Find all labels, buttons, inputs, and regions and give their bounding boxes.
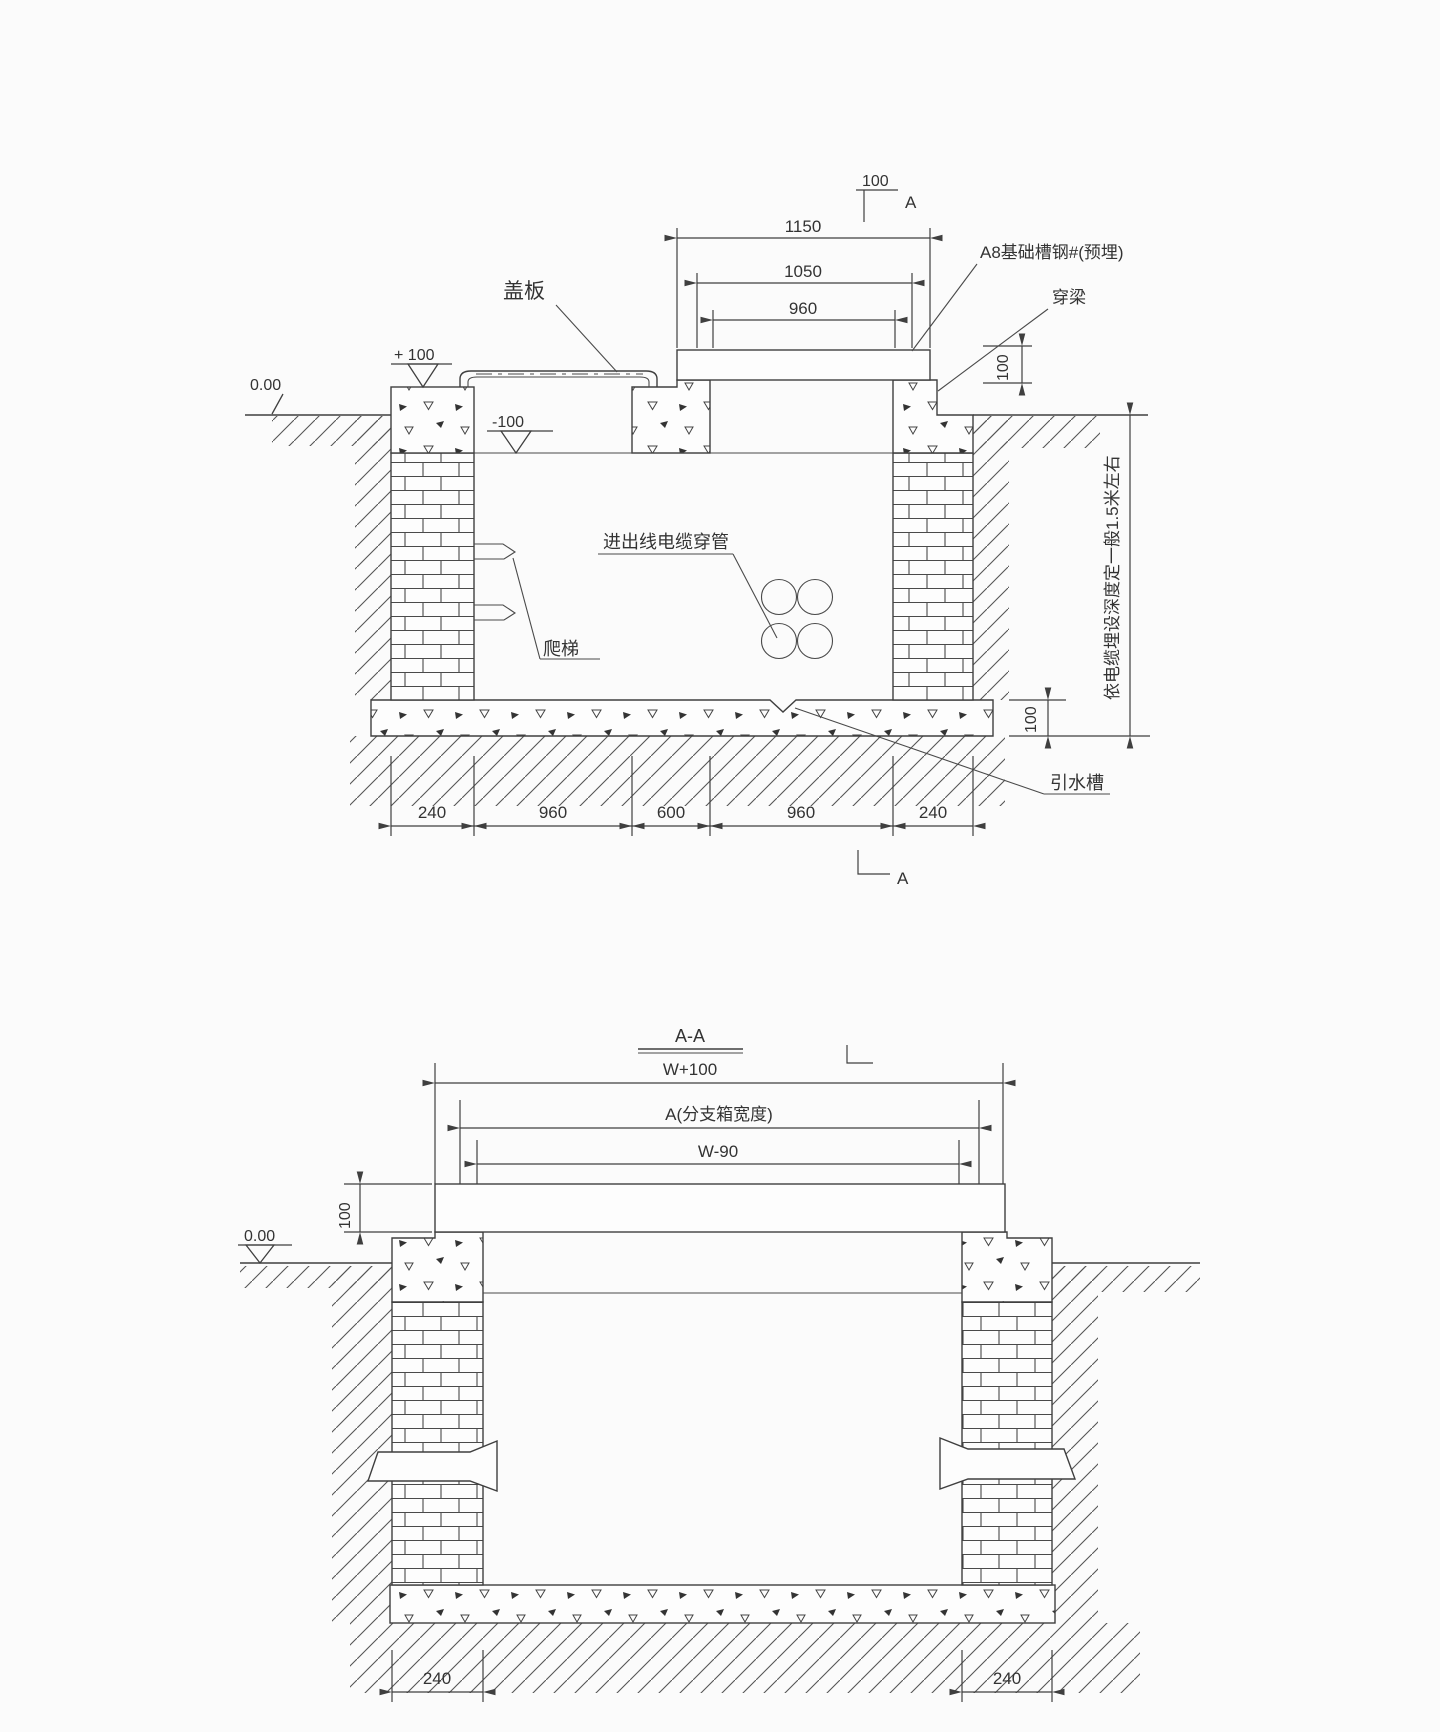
d2-cover-slab (435, 1184, 1005, 1232)
section-letter-bottom: A (897, 869, 909, 888)
label-ladder: 爬梯 (513, 558, 600, 659)
level-0-label: 0.00 (250, 377, 281, 394)
dim-100-floor: 100 (1023, 706, 1040, 733)
d2-level-0: 0.00 (238, 1228, 292, 1263)
dim-b-960l: 960 (539, 803, 567, 822)
d2-left-collar (392, 1232, 483, 1302)
d2-soil-right-band (1052, 1266, 1098, 1623)
section-mark-a-top: 100 A (856, 173, 917, 222)
label-channel-steel: A8基础槽钢#(预埋) (912, 243, 1124, 351)
pit-cross-section: 1150 1050 960 100 A 100 依 (245, 173, 1150, 888)
svg-text:A8基础槽钢#(预埋): A8基础槽钢#(预埋) (980, 243, 1124, 262)
svg-text:进出线电缆穿管: 进出线电缆穿管 (603, 532, 729, 552)
label-cover-plate: 盖板 (503, 280, 617, 372)
level-plus100: + 100 (391, 347, 452, 387)
label-through-beam: 穿梁 (938, 288, 1086, 391)
dim-b-240l: 240 (418, 803, 446, 822)
svg-text:爬梯: 爬梯 (543, 639, 579, 659)
d2-dim-240l: 240 (423, 1669, 451, 1688)
d2-level-0-label: 0.00 (244, 1228, 275, 1245)
level-0: 0.00 (250, 377, 283, 414)
dim-b-600: 600 (657, 803, 685, 822)
dim-960: 960 (789, 299, 817, 318)
d2-dim-wminus: W-90 (698, 1142, 738, 1161)
drawing-canvas: 1150 1050 960 100 A 100 依 (0, 0, 1440, 1732)
soil-hatch-right-band (973, 416, 1009, 700)
section-mark-a-bottom: A (858, 850, 909, 888)
section-letter-top: A (905, 193, 917, 212)
right-concrete-support (893, 380, 973, 453)
depth-dimension: 依电缆埋设深度定一般1.5米左右 100 (1009, 415, 1150, 736)
d2-dim-100: 100 (337, 1202, 354, 1229)
svg-text:引水槽: 引水槽 (1050, 773, 1104, 793)
top-dimensions: 1150 1050 960 (677, 217, 930, 348)
svg-text:盖板: 盖板 (503, 280, 545, 303)
level-minus100: -100 (487, 414, 553, 453)
d2-right-wall (962, 1302, 1052, 1585)
level-minus100-label: -100 (492, 414, 524, 431)
level-plus100-label: + 100 (394, 347, 435, 364)
dim-b-240r: 240 (919, 803, 947, 822)
d2-left-wall (392, 1302, 483, 1585)
floor-slab (371, 700, 993, 736)
manhole-cover-outer (460, 371, 657, 387)
dim-1150: 1150 (785, 217, 822, 236)
d2-top-dimensions: A(分支箱宽度) W-90 (435, 1063, 1003, 1184)
depth-note: 依电缆埋设深度定一般1.5米左右 (1103, 455, 1122, 700)
d2-dim-240r: 240 (993, 1669, 1021, 1688)
cable-conduits (762, 580, 833, 659)
right-brick-wall (893, 453, 973, 700)
d2-right-collar (962, 1232, 1052, 1302)
ladder-rung-2 (474, 605, 515, 620)
section-offset-100: 100 (862, 173, 889, 190)
d2-dim-awidth: A(分支箱宽度) (665, 1105, 773, 1124)
d2-slab-thickness-dim: 100 (337, 1184, 432, 1232)
aa-section: A-A W+100 A(分支箱宽度) W-90 100 (238, 1026, 1200, 1702)
d2-soil-bottom (350, 1623, 1140, 1693)
left-concrete-collar (391, 387, 474, 453)
label-cable-conduit: 进出线电缆穿管 (598, 532, 777, 638)
d2-floor-slab (390, 1585, 1055, 1623)
left-brick-wall (391, 453, 474, 700)
cable-pit-construction-drawing: 1150 1050 960 100 A 100 依 (0, 0, 1440, 1732)
d2-soil-left-band (332, 1266, 392, 1623)
d2-title: A-A W+100 (638, 1026, 743, 1079)
d2-dim-wplus-label: W+100 (663, 1060, 717, 1079)
soil-hatch-left-band (355, 416, 391, 700)
manhole-cover-inner (468, 377, 649, 387)
dim-1050: 1050 (784, 262, 822, 281)
dim-100-slab: 100 (995, 354, 1012, 381)
d2-corner-mark (847, 1045, 873, 1063)
branch-box-base-slab (677, 350, 930, 380)
middle-concrete-pier (632, 380, 710, 453)
dim-b-960r: 960 (787, 803, 815, 822)
ladder-rung-1 (474, 544, 515, 559)
svg-text:穿梁: 穿梁 (1052, 288, 1086, 307)
d2-title-text: A-A (675, 1026, 705, 1046)
